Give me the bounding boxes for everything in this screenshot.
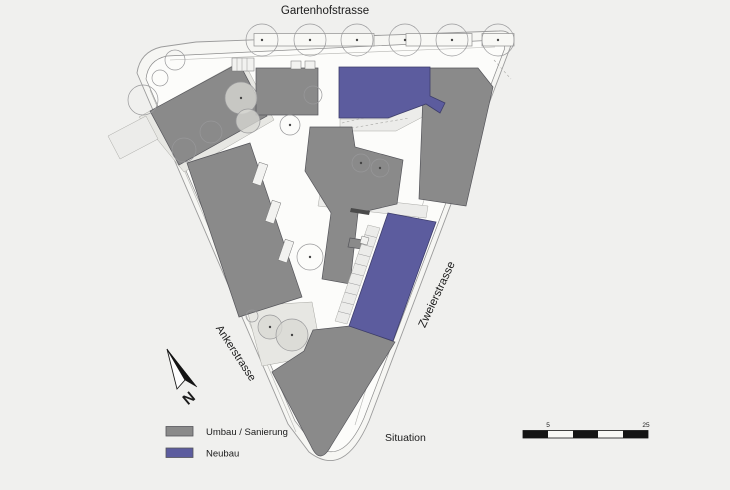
scale-bar-segment — [573, 431, 598, 439]
tree-center-dot — [291, 334, 293, 336]
tree-icon — [236, 109, 260, 133]
roof-vent — [305, 61, 315, 69]
legend: Umbau / Sanierung Neubau — [166, 427, 288, 460]
legend-swatch-neubau — [166, 448, 193, 458]
tree-center-dot — [497, 39, 499, 41]
tree-center-dot — [379, 167, 381, 169]
site-plan-drawing: Gartenhofstrasse Ankerstrasse Zweierstra… — [0, 0, 730, 490]
tree-center-dot — [309, 256, 311, 258]
median-strip — [406, 34, 472, 47]
north-label: N — [179, 389, 198, 409]
street-label-gartenhofstrasse: Gartenhofstrasse — [281, 5, 369, 17]
tree-center-dot — [240, 97, 242, 99]
tree-center-dot — [269, 326, 271, 328]
building-umbau — [256, 68, 318, 115]
scale-bar-segment — [523, 431, 548, 439]
tree-center-dot — [356, 39, 358, 41]
scale-tick-25: 25 — [642, 422, 650, 429]
scale-bar-segment — [623, 431, 648, 439]
tree-center-dot — [451, 39, 453, 41]
tree-center-dot — [261, 39, 263, 41]
tree-center-dot — [309, 39, 311, 41]
roof-vent — [291, 61, 301, 69]
site-plan-page: Gartenhofstrasse Ankerstrasse Zweierstra… — [0, 0, 730, 490]
tree-center-dot — [404, 39, 406, 41]
shed-roof — [232, 58, 254, 71]
plan-caption: Situation — [385, 432, 426, 444]
north-arrow: N — [167, 349, 199, 409]
tree-center-dot — [289, 124, 291, 126]
scale-tick-5: 5 — [546, 422, 550, 429]
legend-label-umbau: Umbau / Sanierung — [206, 427, 288, 438]
legend-label-neubau: Neubau — [206, 449, 239, 460]
tree-center-dot — [360, 162, 362, 164]
legend-swatch-umbau — [166, 427, 193, 437]
scale-bar: 5 25 — [523, 422, 650, 438]
